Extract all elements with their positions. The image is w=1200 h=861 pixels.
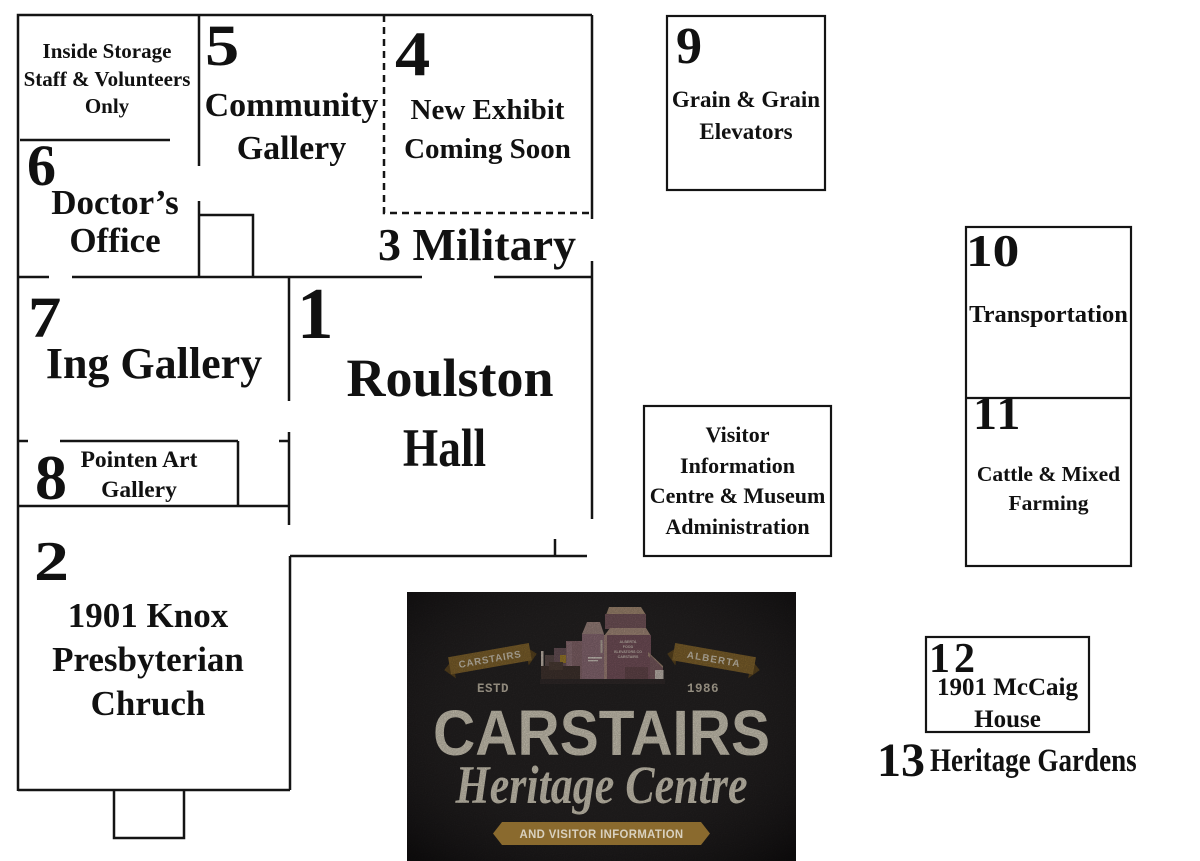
svg-text:AND VISITOR INFORMATION: AND VISITOR INFORMATION xyxy=(520,827,684,841)
